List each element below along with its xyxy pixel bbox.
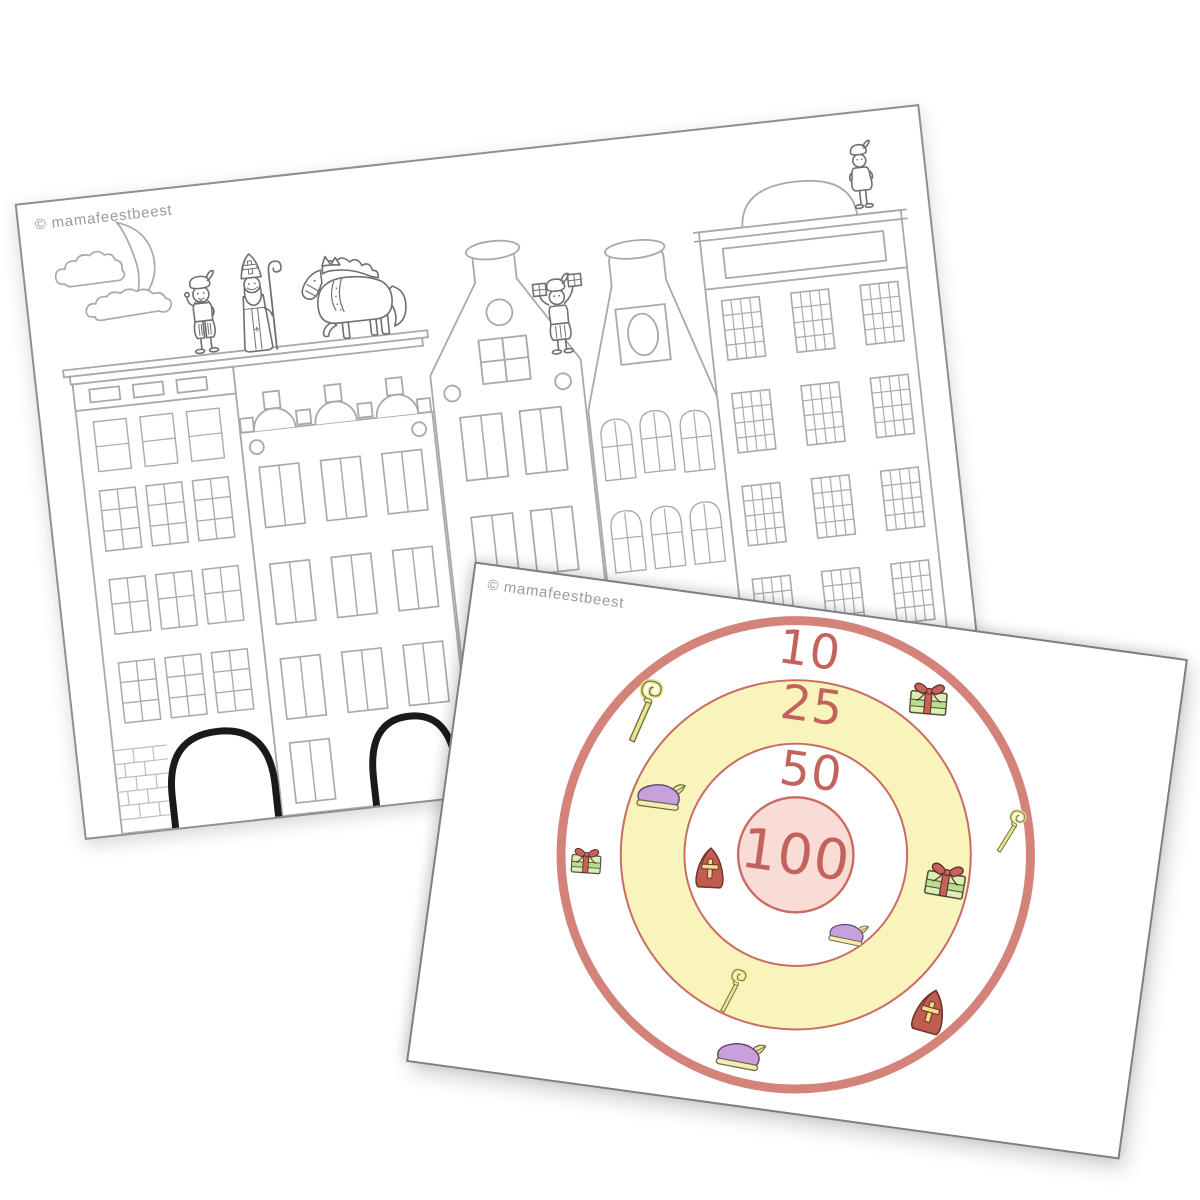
horse-amerigo bbox=[299, 248, 409, 342]
cloud-icon bbox=[84, 285, 172, 322]
window bbox=[801, 382, 845, 445]
window bbox=[99, 487, 141, 551]
window bbox=[270, 560, 316, 625]
window bbox=[186, 408, 224, 461]
window bbox=[342, 648, 388, 713]
window bbox=[320, 456, 366, 521]
ring-label-50: 50 bbox=[776, 741, 846, 804]
window bbox=[881, 467, 925, 530]
moon-and-clouds bbox=[50, 218, 172, 325]
window bbox=[156, 571, 198, 629]
window bbox=[165, 654, 207, 718]
window bbox=[519, 407, 567, 475]
window bbox=[331, 553, 377, 618]
cloud-icon bbox=[53, 249, 125, 288]
window bbox=[259, 463, 305, 528]
window bbox=[290, 739, 336, 804]
page-target-game: © mamafeestbeest 10 25 50 100 bbox=[406, 561, 1188, 1159]
window bbox=[280, 655, 326, 720]
watermark: © mamafeestbeest bbox=[486, 577, 625, 612]
ring-label-25: 25 bbox=[777, 675, 847, 738]
window bbox=[403, 641, 449, 706]
window bbox=[192, 477, 234, 541]
ring-label-10: 10 bbox=[775, 619, 845, 682]
window bbox=[811, 475, 855, 538]
window bbox=[202, 566, 244, 624]
window bbox=[140, 413, 178, 466]
window bbox=[211, 649, 253, 713]
window bbox=[891, 560, 935, 623]
window bbox=[146, 482, 188, 546]
window bbox=[93, 418, 131, 471]
window bbox=[742, 482, 786, 545]
window bbox=[460, 413, 508, 481]
window bbox=[382, 449, 428, 514]
window bbox=[530, 506, 578, 574]
window bbox=[393, 546, 439, 611]
piet-waving bbox=[182, 271, 222, 355]
window bbox=[791, 289, 835, 352]
window bbox=[732, 389, 776, 452]
sinterklaas-with-staff bbox=[235, 251, 290, 353]
window bbox=[109, 576, 151, 634]
watermark: © mamafeestbeest bbox=[34, 201, 173, 233]
product-mockup: © mamafeestbeest bbox=[0, 0, 1200, 1200]
window bbox=[118, 659, 160, 723]
window bbox=[870, 374, 914, 437]
window bbox=[721, 297, 765, 360]
target-board: 10 25 50 100 bbox=[531, 591, 1060, 1119]
window bbox=[860, 281, 904, 344]
